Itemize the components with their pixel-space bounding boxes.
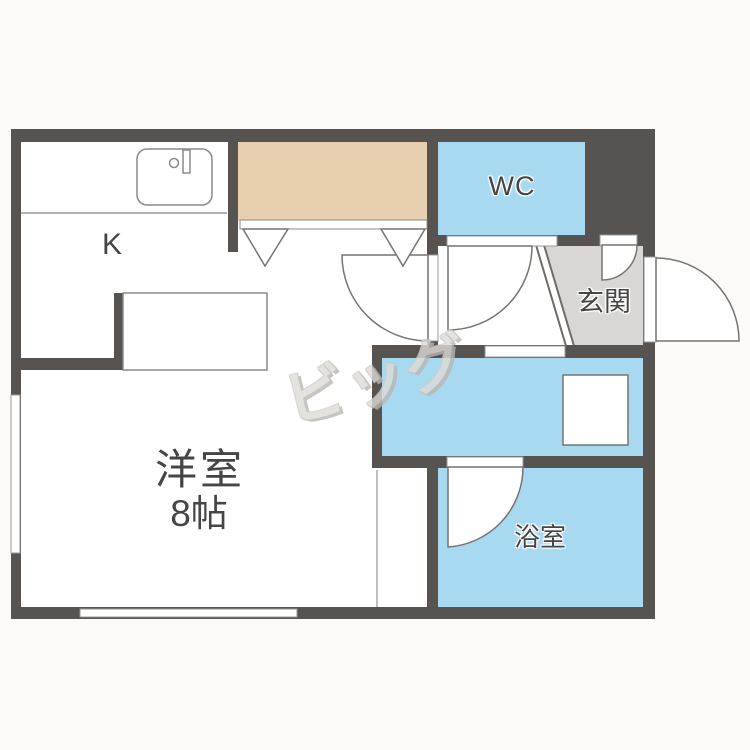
main-room-size-label: 8帖	[170, 483, 228, 537]
front-door-swing	[656, 258, 739, 341]
wall-bathroom-left	[427, 468, 438, 608]
wall-kitchen-stub	[11, 358, 123, 370]
kitchen-sink-icon	[137, 149, 212, 205]
washroom-opening	[485, 346, 565, 357]
wc-label: WC	[489, 171, 536, 202]
bathroom-label: 浴室	[514, 517, 566, 554]
floor-plan: ビッグ K WC 玄関 洋室 8帖 浴室	[0, 0, 750, 750]
kitchen-label: K	[102, 228, 122, 262]
bathroom-door-opening	[447, 457, 523, 467]
washing-machine-pan	[563, 375, 628, 445]
sink-drain-icon	[170, 159, 179, 168]
wall-top-right-block	[585, 129, 655, 246]
entrance-label: 玄関	[577, 280, 631, 319]
wc-door-opening	[447, 236, 557, 246]
closet-door-track	[240, 220, 427, 229]
window-bottom	[80, 609, 297, 617]
front-door-leaf	[644, 257, 656, 342]
wall-kitchen-right	[228, 142, 238, 252]
wall-top	[11, 129, 655, 142]
kitchen-counter-island	[123, 293, 267, 370]
window-left	[11, 395, 20, 553]
sink-faucet-icon	[183, 150, 190, 173]
closet-floor	[238, 140, 427, 221]
wall-counter-end	[114, 293, 123, 370]
